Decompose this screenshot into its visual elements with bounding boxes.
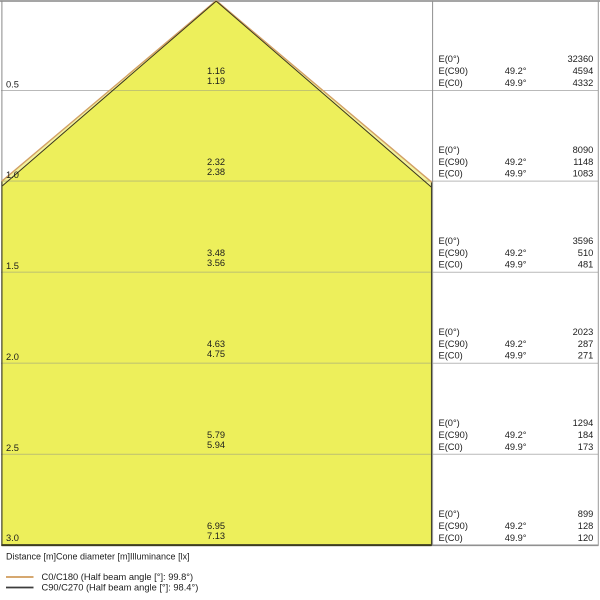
svg-text:3.56: 3.56 [207,258,225,268]
svg-text:173: 173 [578,442,594,452]
svg-text:184: 184 [578,430,594,440]
svg-text:1148: 1148 [573,157,593,167]
svg-text:49.9°: 49.9° [505,351,527,361]
svg-text:49.2°: 49.2° [505,521,527,531]
svg-text:481: 481 [578,260,594,270]
svg-text:E(C0): E(C0) [439,533,463,543]
svg-text:1294: 1294 [573,418,594,428]
svg-text:2023: 2023 [573,327,594,337]
svg-text:287: 287 [578,339,594,349]
svg-text:E(0°): E(0°) [439,236,460,246]
svg-text:E(C90): E(C90) [439,430,468,440]
svg-text:1.0: 1.0 [6,170,19,180]
svg-text:7.13: 7.13 [207,531,225,541]
svg-text:1.16: 1.16 [207,66,225,76]
svg-text:E(C90): E(C90) [439,339,468,349]
svg-text:C90/C270 (Half beam angle [°]:: C90/C270 (Half beam angle [°]: 98.4°) [42,583,199,593]
svg-text:3.0: 3.0 [6,533,19,543]
svg-text:6.95: 6.95 [207,521,225,531]
svg-text:1.19: 1.19 [207,76,225,86]
svg-text:E(C0): E(C0) [439,78,463,88]
svg-text:E(0°): E(0°) [439,54,460,64]
svg-text:49.9°: 49.9° [505,78,527,88]
svg-text:1083: 1083 [573,169,594,179]
svg-text:49.2°: 49.2° [505,157,527,167]
svg-text:899: 899 [578,509,594,519]
svg-text:2.5: 2.5 [6,443,19,453]
svg-text:510: 510 [578,248,594,258]
svg-text:4.75: 4.75 [207,349,225,359]
svg-text:E(0°): E(0°) [439,418,460,428]
svg-text:E(C90): E(C90) [439,521,468,531]
svg-text:8090: 8090 [573,145,594,155]
svg-text:3.48: 3.48 [207,248,225,258]
svg-text:128: 128 [578,521,594,531]
svg-text:120: 120 [578,533,594,543]
svg-text:E(C0): E(C0) [439,169,463,179]
svg-text:E(C90): E(C90) [439,66,468,76]
svg-text:0.5: 0.5 [6,79,19,89]
svg-text:E(C0): E(C0) [439,442,463,452]
svg-text:E(C0): E(C0) [439,351,463,361]
svg-text:4332: 4332 [573,78,594,88]
svg-text:C0/C180 (Half beam angle [°]:: C0/C180 (Half beam angle [°]: 99.8°) [42,572,194,582]
svg-text:3596: 3596 [573,236,594,246]
svg-text:E(0°): E(0°) [439,327,460,337]
svg-text:Distance [m]Cone diameter [m]I: Distance [m]Cone diameter [m]Illuminance… [6,552,190,562]
svg-text:2.38: 2.38 [207,167,225,177]
svg-text:49.9°: 49.9° [505,260,527,270]
svg-text:E(0°): E(0°) [439,509,460,519]
svg-text:5.94: 5.94 [207,440,225,450]
svg-text:49.9°: 49.9° [505,169,527,179]
svg-text:2.32: 2.32 [207,157,225,167]
svg-text:E(C90): E(C90) [439,248,468,258]
svg-text:4.63: 4.63 [207,339,225,349]
svg-text:49.2°: 49.2° [505,339,527,349]
svg-text:5.79: 5.79 [207,430,225,440]
svg-text:4594: 4594 [573,66,594,76]
svg-text:49.2°: 49.2° [505,430,527,440]
svg-text:1.5: 1.5 [6,261,19,271]
svg-text:E(0°): E(0°) [439,145,460,155]
svg-text:49.2°: 49.2° [505,248,527,258]
svg-text:E(C0): E(C0) [439,260,463,270]
svg-text:49.9°: 49.9° [505,533,527,543]
svg-text:32360: 32360 [567,54,593,64]
svg-text:2.0: 2.0 [6,352,19,362]
svg-text:49.9°: 49.9° [505,442,527,452]
svg-text:49.2°: 49.2° [505,66,527,76]
svg-text:E(C90): E(C90) [439,157,468,167]
svg-text:271: 271 [578,351,594,361]
